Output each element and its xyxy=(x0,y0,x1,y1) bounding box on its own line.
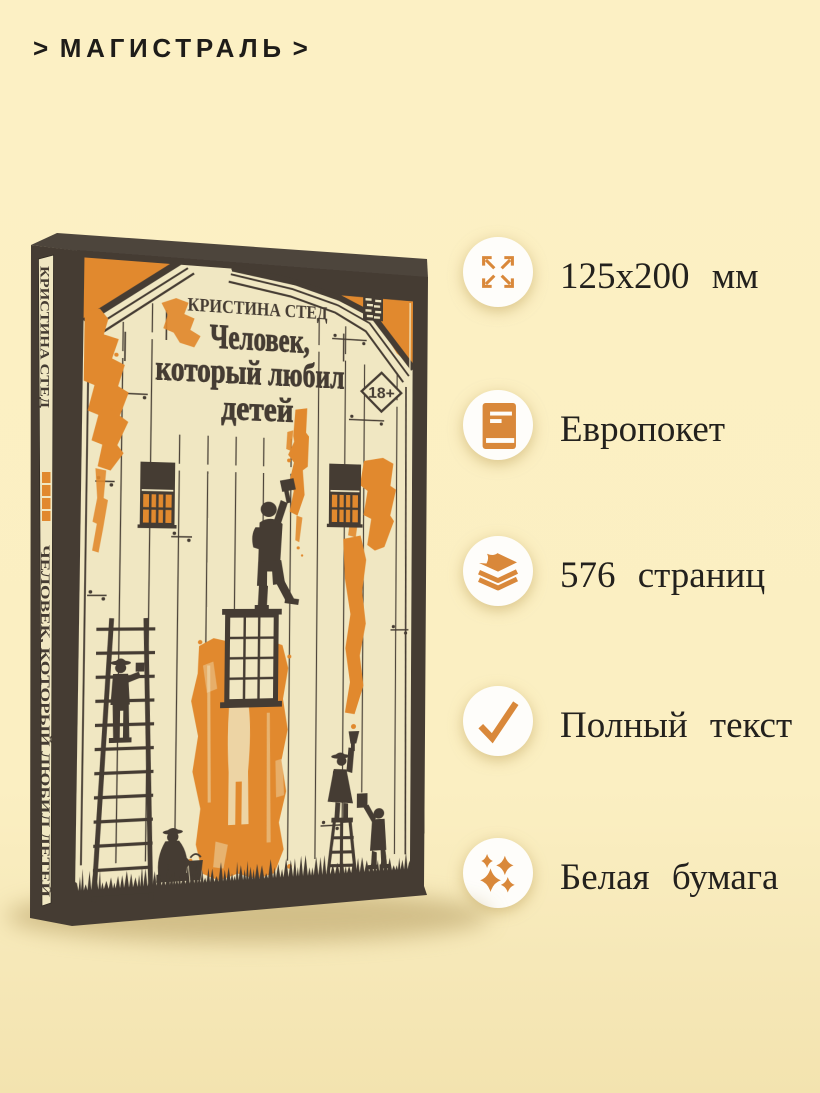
svg-text:ЧЕЛОВЕК, КОТОРЫЙ ЛЮБИЛ ДЕТЕЙ: ЧЕЛОВЕК, КОТОРЫЙ ЛЮБИЛ ДЕТЕЙ xyxy=(38,545,52,897)
svg-text:детей: детей xyxy=(221,389,294,430)
svg-text:18+: 18+ xyxy=(368,383,395,402)
svg-text:КРИСТИНА СТЕД: КРИСТИНА СТЕД xyxy=(38,266,52,409)
